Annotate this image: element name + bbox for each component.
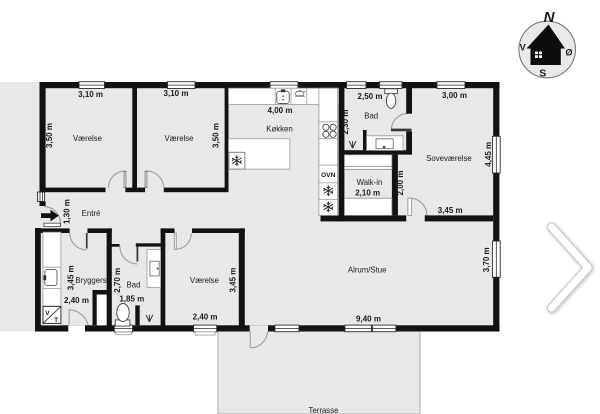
svg-text:1,30 m: 1,30 m: [63, 199, 72, 224]
svg-text:Bryggers: Bryggers: [75, 276, 106, 285]
svg-text:3,45 m: 3,45 m: [66, 265, 75, 290]
svg-text:S: S: [539, 67, 546, 79]
svg-text:4,45 m: 4,45 m: [484, 142, 493, 167]
svg-text:2,50 m: 2,50 m: [358, 92, 383, 101]
svg-text:V: V: [45, 310, 50, 317]
svg-text:2,10 m: 2,10 m: [355, 189, 380, 198]
svg-text:3,50 m: 3,50 m: [212, 123, 221, 148]
svg-text:Walk-in: Walk-in: [357, 178, 383, 187]
svg-text:2,40 m: 2,40 m: [193, 312, 218, 321]
svg-text:3,50 m: 3,50 m: [45, 123, 54, 148]
svg-text:Terrasse: Terrasse: [309, 406, 339, 414]
svg-text:3,45 m: 3,45 m: [438, 206, 463, 215]
svg-text:2,70 m: 2,70 m: [113, 268, 122, 293]
svg-text:OVN: OVN: [321, 172, 336, 179]
svg-text:Bad: Bad: [127, 281, 141, 290]
svg-text:4,00 m: 4,00 m: [268, 106, 293, 115]
svg-text:N: N: [544, 9, 556, 26]
svg-text:3,70 m: 3,70 m: [482, 247, 491, 272]
svg-text:Køkken: Køkken: [266, 124, 292, 133]
svg-text:Ø: Ø: [565, 48, 572, 58]
svg-text:Værelse: Værelse: [190, 276, 219, 285]
svg-text:Bad: Bad: [364, 111, 378, 120]
svg-text:V: V: [520, 42, 526, 52]
svg-text:Soveværelse: Soveværelse: [426, 154, 472, 163]
svg-text:Entré: Entré: [82, 209, 101, 218]
svg-text:3,10 m: 3,10 m: [164, 89, 189, 98]
svg-text:3,00 m: 3,00 m: [442, 91, 467, 100]
svg-text:Alrum/Stue: Alrum/Stue: [348, 266, 387, 275]
svg-text:T: T: [54, 317, 58, 324]
svg-text:2,00 m: 2,00 m: [396, 171, 405, 196]
svg-text:Værelse: Værelse: [164, 134, 193, 143]
svg-text:3,10 m: 3,10 m: [78, 90, 103, 99]
svg-text:2,30 m: 2,30 m: [341, 110, 350, 135]
svg-text:1,85 m: 1,85 m: [119, 294, 144, 303]
svg-text:9,40 m: 9,40 m: [356, 315, 381, 324]
svg-text:3,45 m: 3,45 m: [229, 268, 238, 293]
svg-text:Værelse: Værelse: [73, 134, 102, 143]
svg-text:2,40 m: 2,40 m: [64, 296, 89, 305]
